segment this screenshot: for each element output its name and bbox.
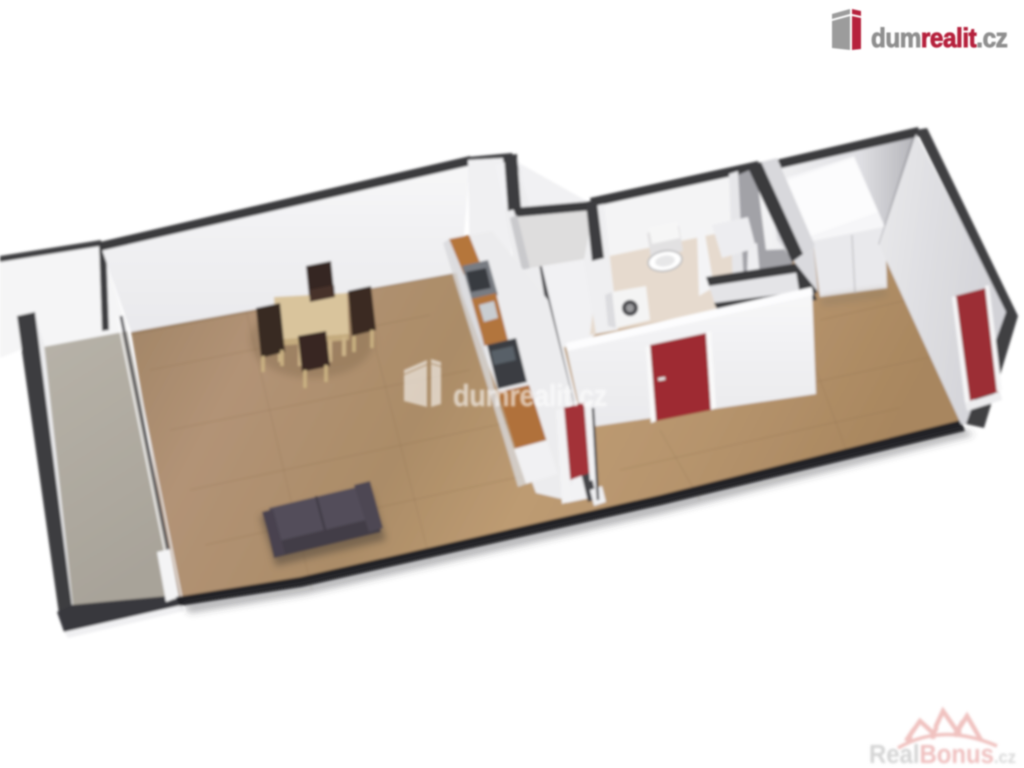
svg-text:dumrealit.cz: dumrealit.cz [871,24,1007,53]
svg-text:dumrealit.cz: dumrealit.cz [453,379,607,413]
